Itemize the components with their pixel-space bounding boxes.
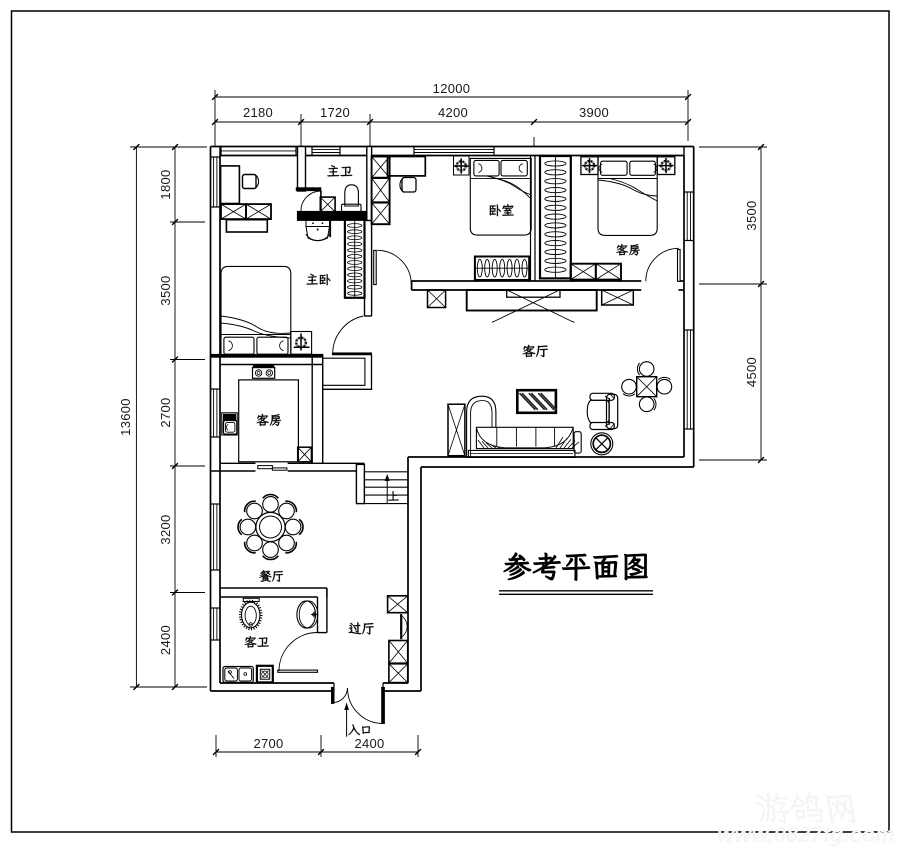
svg-text:2180: 2180 xyxy=(243,105,273,120)
svg-text:2700: 2700 xyxy=(253,736,283,751)
svg-text:12000: 12000 xyxy=(433,81,471,96)
svg-text:2400: 2400 xyxy=(158,625,173,655)
svg-text:www.0827tg.com: www.0827tg.com xyxy=(717,822,895,847)
svg-text:4200: 4200 xyxy=(438,105,468,120)
svg-text:1720: 1720 xyxy=(320,105,350,120)
svg-text:2700: 2700 xyxy=(158,397,173,427)
svg-text:4500: 4500 xyxy=(744,357,759,387)
svg-text:3900: 3900 xyxy=(579,105,609,120)
svg-text:3500: 3500 xyxy=(158,275,173,305)
svg-text:1800: 1800 xyxy=(158,169,173,199)
svg-text:13600: 13600 xyxy=(118,398,133,436)
svg-text:2400: 2400 xyxy=(354,736,384,751)
svg-text:3200: 3200 xyxy=(158,514,173,544)
svg-text:3500: 3500 xyxy=(744,200,759,230)
